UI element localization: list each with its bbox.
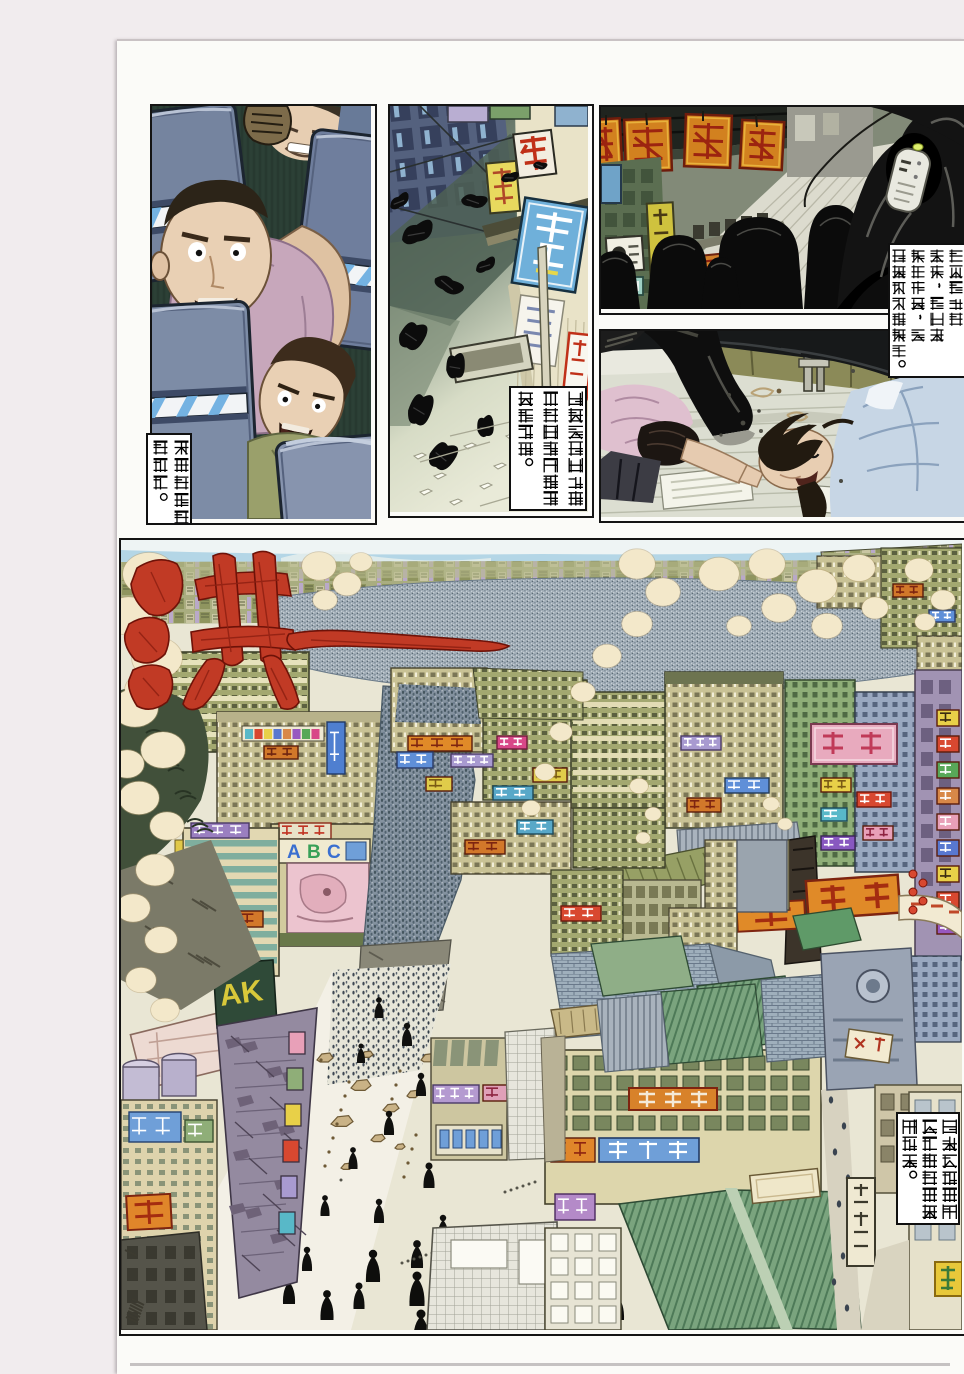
svg-text:C: C (327, 842, 341, 863)
svg-text:A: A (287, 842, 301, 863)
svg-text:B: B (307, 842, 321, 863)
